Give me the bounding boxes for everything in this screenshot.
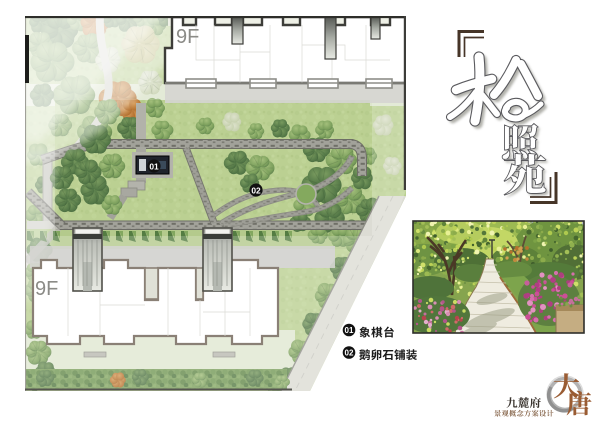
svg-text:02: 02 <box>251 185 261 195</box>
svg-text:9F: 9F <box>35 278 58 300</box>
svg-text:01: 01 <box>149 161 159 171</box>
svg-text:02: 02 <box>345 349 354 358</box>
svg-text:9F: 9F <box>176 26 199 48</box>
svg-text:01: 01 <box>345 326 354 335</box>
